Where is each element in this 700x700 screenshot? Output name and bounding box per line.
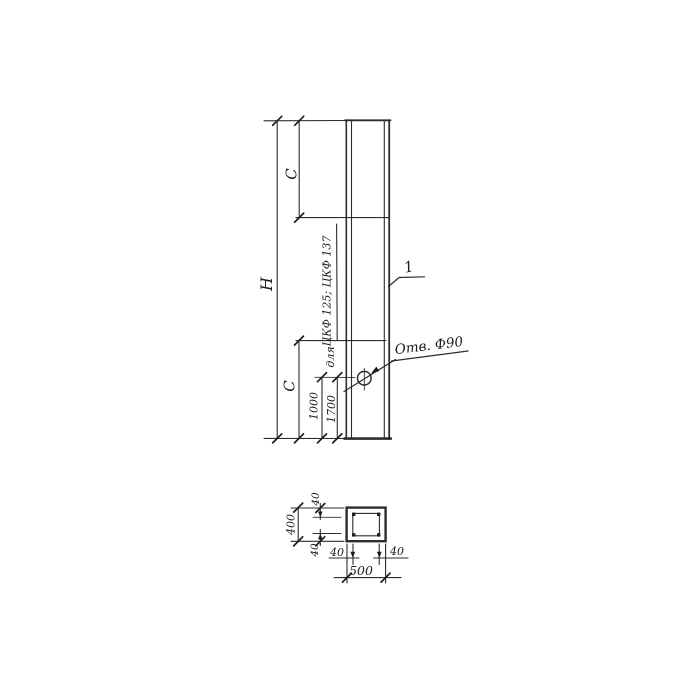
section-view: 400 40 40 40 40 500 xyxy=(285,492,409,583)
section-outline xyxy=(347,508,386,542)
rebar-dots xyxy=(352,513,380,537)
section-stirrup-rect xyxy=(353,513,380,535)
dim-label-overall-height: H xyxy=(257,276,276,292)
note-series: ЦКФ 125; ЦКФ 137 xyxy=(321,236,334,347)
note-prefix: для xyxy=(324,346,337,367)
dim-label-40-top: 40 xyxy=(310,492,322,507)
dim-label-c-bottom: C xyxy=(281,380,299,392)
note-underline xyxy=(337,224,338,340)
dim-label-40-left: 40 xyxy=(329,546,344,559)
dim-label-1000: 1000 xyxy=(308,392,321,420)
drawing-sheet: H C C 1000 1700 для ЦКФ 125; ЦКФ 137 Отв… xyxy=(0,0,700,700)
hole xyxy=(344,351,468,392)
dim-label-1700: 1700 xyxy=(325,395,338,423)
dim-label-500: 500 xyxy=(349,563,373,578)
technical-drawing: H C C 1000 1700 для ЦКФ 125; ЦКФ 137 Отв… xyxy=(0,0,700,700)
item-mark-leader xyxy=(389,277,425,287)
section-ticks-arrows xyxy=(294,503,390,582)
column-outline xyxy=(296,120,391,438)
item-mark-label: 1 xyxy=(402,257,415,277)
hole-callout-label: Отв. Ф90 xyxy=(394,334,465,358)
dim-label-400: 400 xyxy=(285,514,298,536)
dim-label-40-bottom: 40 xyxy=(309,543,321,558)
dim-label-c-top: C xyxy=(283,168,301,180)
elevation-view: H C C 1000 1700 для ЦКФ 125; ЦКФ 137 Отв… xyxy=(257,116,468,443)
dim-label-40-right: 40 xyxy=(389,545,404,558)
